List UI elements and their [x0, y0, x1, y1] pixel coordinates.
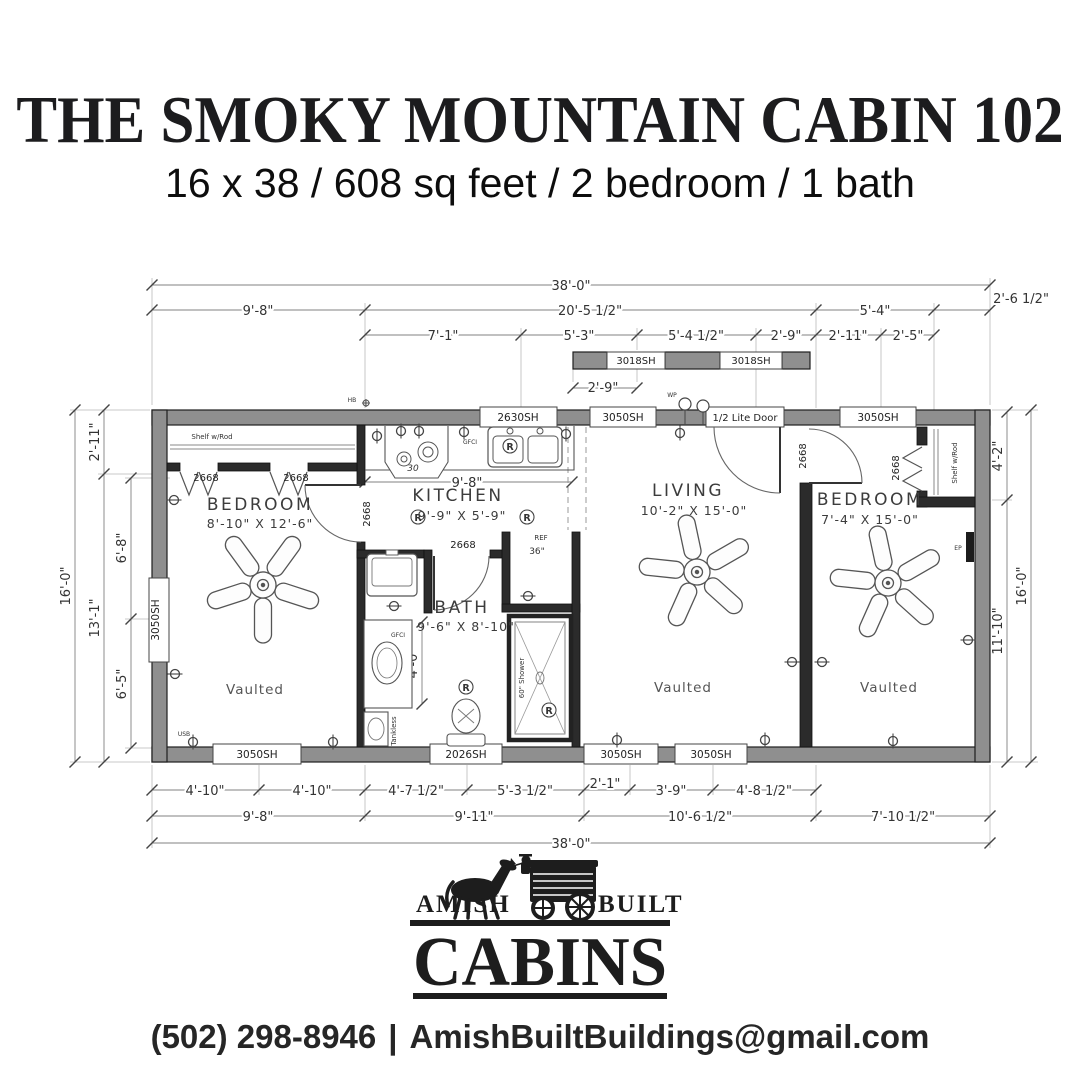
range-size-label: 30	[407, 464, 419, 474]
dim: 5'-4"	[860, 304, 891, 319]
shower-label: 60" Shower	[518, 658, 526, 699]
window-label: 3018SH	[731, 356, 770, 367]
window-label: 2630SH	[497, 412, 538, 424]
dim: 13'-1"	[88, 598, 103, 637]
recessed-light: R	[462, 683, 470, 694]
hose-bib: HB	[348, 397, 370, 407]
fridge-label: REF	[534, 534, 547, 542]
recessed-light: R	[506, 442, 514, 453]
dim: 9'-8"	[243, 304, 274, 319]
door-label: 2668	[193, 473, 218, 484]
tankless-label: Tankless	[390, 716, 398, 747]
window-label: 3050SH	[690, 749, 731, 761]
window-label: 3050SH	[600, 749, 641, 761]
room-dims-living: 10'-2" X 15'-0"	[641, 503, 748, 518]
dim: 2'-9"	[771, 329, 802, 344]
vaulted-label: Vaulted	[226, 682, 284, 698]
dim: 2'-11"	[828, 329, 867, 344]
gfci-label: GFCI	[391, 632, 405, 639]
hb-label: HB	[348, 397, 357, 404]
dim-bottom-overall: 38'-0"	[551, 837, 590, 852]
page: THE SMOKY MOUNTAIN CABIN 102 16 x 38 / 6…	[0, 0, 1080, 1080]
dim: 7'-10 1/2"	[871, 810, 935, 825]
room-name-living: LIVING	[652, 481, 724, 501]
toilet	[447, 734, 485, 746]
dim: 3'-9"	[656, 784, 687, 799]
dim: 4'-7 1/2"	[388, 784, 444, 799]
dim: 20'-5 1/2"	[558, 304, 622, 319]
vault-break-lines	[568, 427, 586, 530]
horse-and-wagon-icon	[447, 854, 598, 920]
dim-right-overall: 16'-0"	[1015, 566, 1030, 605]
dim: 4'-10"	[185, 784, 224, 799]
dim: 6'-8"	[115, 533, 130, 564]
electrical-panel: EP	[954, 532, 974, 562]
dim: 9'-8"	[243, 810, 274, 825]
closet-shelf-label: Shelf w/Rod	[191, 433, 232, 441]
ceiling-fan	[811, 505, 970, 664]
kitchen: 30 GFCI	[365, 426, 574, 478]
dim: 4'-8 1/2"	[736, 784, 792, 799]
room-name-bath: BATH	[434, 598, 489, 618]
door-label: 2668	[450, 540, 475, 551]
gfci-label: GFCI	[463, 439, 477, 446]
window-label: 3050SH	[602, 412, 643, 424]
dim: 7'-1"	[428, 329, 459, 344]
contact-separator: |	[376, 1018, 409, 1055]
fridge-width-label: 36"	[529, 547, 545, 557]
dim: 9'-11"	[454, 810, 493, 825]
page-subtitle: 16 x 38 / 608 sq feet / 2 bedroom / 1 ba…	[0, 160, 1080, 207]
usb-label: USB	[178, 731, 190, 738]
dim: 5'-3 1/2"	[497, 784, 553, 799]
wp-label: WP	[667, 392, 677, 399]
washer-dryer	[367, 554, 417, 596]
room-name-bedroom-left: BEDROOM	[207, 495, 313, 515]
amish-built-cabins-logo: AMISH BUILT	[380, 852, 700, 1004]
door-label: 2668	[362, 501, 373, 526]
email-address: AmishBuiltBuildings@gmail.com	[410, 1018, 930, 1055]
room-dims-kitchen: 9'-9" X 5'-9"	[418, 508, 507, 523]
room-dims-bath: 9'-6" X 8'-10"	[417, 619, 515, 634]
logo-cabins: CABINS	[413, 924, 667, 1001]
entry-door-label: 1/2 Lite Door	[713, 413, 779, 424]
page-title: THE SMOKY MOUNTAIN CABIN 102	[0, 83, 1080, 160]
dim: 4'-10"	[292, 784, 331, 799]
logo-rule-bottom	[413, 993, 667, 999]
recessed-light: R	[523, 513, 531, 524]
dormer-wall: 3018SH 3018SH	[573, 352, 810, 369]
dim: 5'-4 1/2"	[668, 329, 724, 344]
recessed-light: R	[545, 706, 553, 717]
window-label: 3050SH	[857, 412, 898, 424]
dim: 6'-5"	[115, 669, 130, 700]
dim-top-overall: 38'-0"	[551, 279, 590, 294]
dim: 5'-3"	[564, 329, 595, 344]
dim: 10'-6 1/2"	[668, 810, 732, 825]
dim-dormer: 2'-9"	[588, 381, 619, 396]
door-label: 2668	[891, 455, 902, 480]
window-label: 2026SH	[445, 749, 486, 761]
window-label: 3050SH	[236, 749, 277, 761]
bifold-door	[903, 447, 922, 491]
dim: 2'-1"	[590, 777, 621, 792]
room-name-kitchen: KITCHEN	[412, 486, 503, 506]
dim: 2'-6 1/2"	[993, 292, 1049, 307]
logo-built: BUILT	[598, 891, 684, 918]
door-label: 2668	[283, 473, 308, 484]
room-dims-bedroom-right: 7'-4" X 15'-0"	[821, 512, 919, 527]
closet-shelf-label: Shelf w/Rod	[951, 442, 959, 483]
window-label: 3018SH	[616, 356, 655, 367]
dim: 2'-11"	[88, 422, 103, 461]
phone-number: (502) 298-8946	[151, 1018, 377, 1055]
fridge-nook: REF 36"	[529, 534, 547, 557]
vaulted-label: Vaulted	[860, 680, 918, 696]
room-name-bedroom-right: BEDROOM	[817, 490, 923, 510]
kitchen-sink	[488, 427, 562, 467]
contact-line: (502) 298-8946|AmishBuiltBuildings@gmail…	[0, 1018, 1080, 1056]
dim: 4'-2"	[991, 441, 1006, 472]
floor-plan: 38'-0" 9'-8" 20'-5 1/2" 5'-4" 2'-6 1/2" …	[0, 250, 1080, 862]
ceiling-fan	[196, 514, 336, 658]
vaulted-label: Vaulted	[654, 680, 712, 696]
window-label: 3050SH	[150, 599, 162, 640]
dim: 11'-10"	[991, 607, 1006, 654]
bath-fixtures: GFCI Tankless 60" Shower	[364, 550, 571, 747]
ep-label: EP	[954, 545, 962, 552]
dim: 2'-5"	[893, 329, 924, 344]
room-dims-bedroom-left: 8'-10" X 12'-6"	[207, 516, 314, 531]
door-label: 2668	[798, 443, 809, 468]
dim-left-overall: 16'-0"	[59, 566, 74, 605]
